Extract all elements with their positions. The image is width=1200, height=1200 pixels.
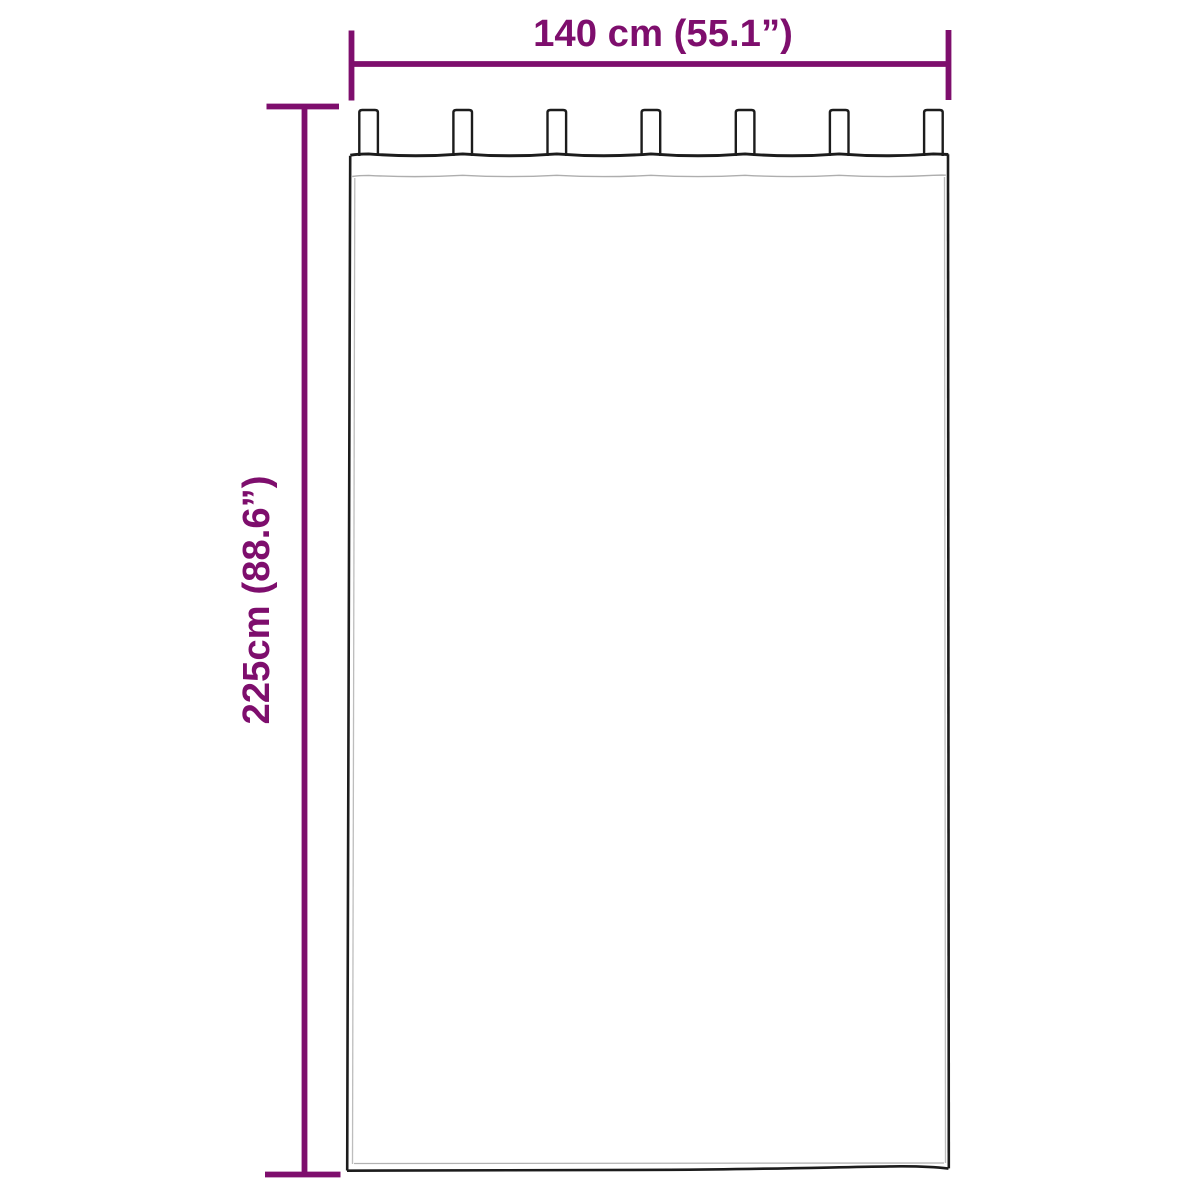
svg-text:225cm (88.6”): 225cm (88.6”) <box>235 475 278 724</box>
svg-text:140 cm (55.1”): 140 cm (55.1”) <box>533 12 793 55</box>
